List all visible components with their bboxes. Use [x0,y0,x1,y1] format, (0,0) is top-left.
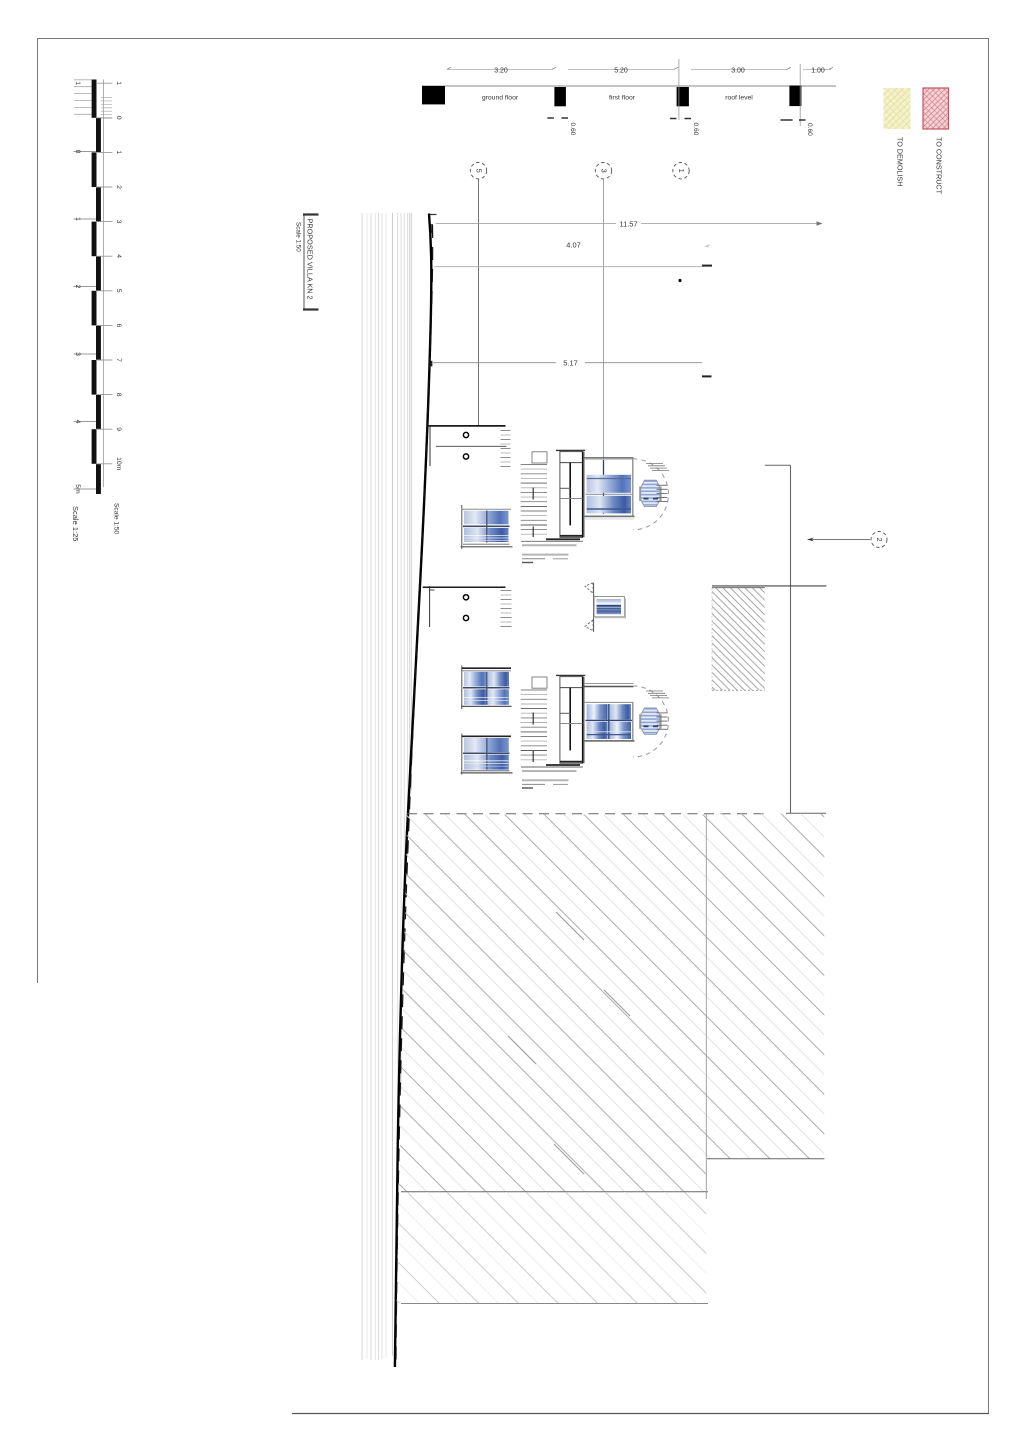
svg-text:0: 0 [74,150,81,154]
svg-text:2: 2 [74,285,81,289]
svg-text:1: 1 [115,151,122,155]
svg-text:5: 5 [115,289,122,293]
svg-text:3: 3 [115,220,122,224]
svg-text:first floor: first floor [609,95,636,102]
svg-text:1.00: 1.00 [811,67,825,74]
svg-text:1: 1 [115,81,122,85]
svg-text:TO CONSTRUCT: TO CONSTRUCT [935,137,944,195]
svg-text:3.00: 3.00 [731,67,745,74]
svg-text:3: 3 [600,169,609,173]
svg-text:Scale 1:25: Scale 1:25 [71,506,80,541]
svg-text:1: 1 [677,169,686,173]
svg-text:ground floor: ground floor [482,95,519,102]
svg-text:5.17: 5.17 [563,359,577,368]
svg-text:0.60: 0.60 [692,123,699,136]
svg-text:11.57: 11.57 [620,219,638,228]
svg-text:4: 4 [74,420,81,424]
svg-text:0: 0 [115,116,122,120]
svg-text:3: 3 [74,352,81,356]
svg-text:2: 2 [875,537,884,541]
svg-text:1: 1 [74,217,81,221]
svg-text:roof level: roof level [725,95,753,102]
svg-text:5: 5 [475,169,484,173]
svg-text:2: 2 [115,185,122,189]
svg-text:10m: 10m [115,457,122,471]
svg-text:5m: 5m [74,484,81,494]
svg-text:PROPOSED VILLA KN 2: PROPOSED VILLA KN 2 [306,219,315,300]
svg-text:1: 1 [74,81,81,85]
svg-text:Scale 1:50: Scale 1:50 [295,222,302,252]
svg-text:4: 4 [115,254,122,258]
svg-text:5.20: 5.20 [614,67,628,74]
svg-text:0.60: 0.60 [806,123,813,136]
svg-text:TO DEMOLISH: TO DEMOLISH [896,137,905,186]
svg-text:0.60: 0.60 [569,123,576,136]
svg-text:6: 6 [115,324,122,328]
svg-text:7: 7 [115,358,122,362]
svg-text:4.07: 4.07 [566,241,580,250]
svg-text:3.20: 3.20 [494,67,508,74]
svg-text:9: 9 [115,427,122,431]
svg-text:8: 8 [115,393,122,397]
svg-text:Scale 1:50: Scale 1:50 [113,503,120,534]
